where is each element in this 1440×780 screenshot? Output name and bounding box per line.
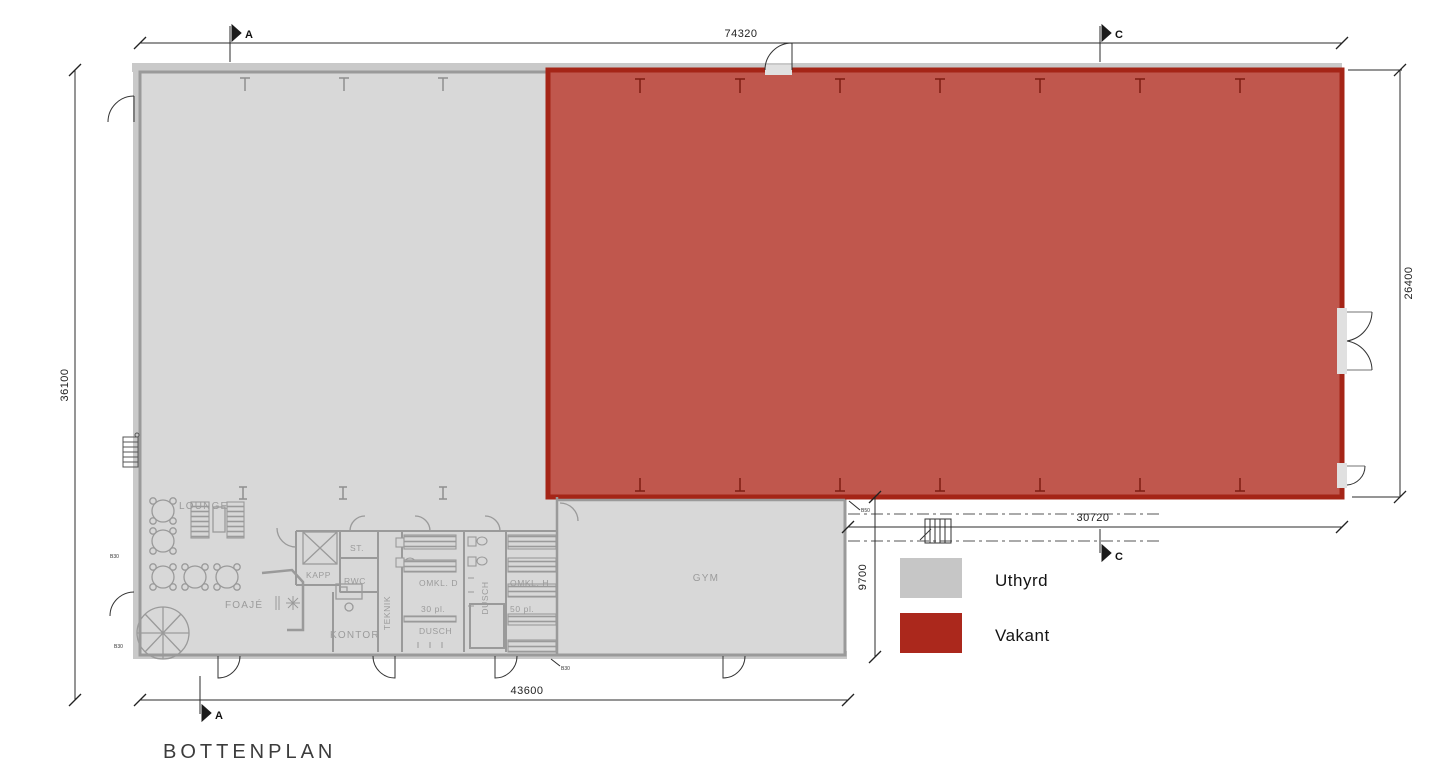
dim-vacant-width: 30720 <box>1076 512 1109 524</box>
floorplan-page: LOUNGE FOAJÉ KAPP ST. RWC KONTOR TEKNIK … <box>0 0 1440 780</box>
door-arc <box>110 592 134 616</box>
room-label-st: ST. <box>350 543 364 553</box>
section-marker-label: A <box>245 29 253 41</box>
single-door <box>1347 466 1365 485</box>
legend-swatch-uthyrd <box>900 558 962 598</box>
door-arc <box>218 656 240 678</box>
room-label-foaje: FOAJÉ <box>225 598 263 611</box>
room-label-omkl-d-capacity: 30 pl. <box>421 604 445 614</box>
floorplan-drawing: LOUNGE FOAJÉ KAPP ST. RWC KONTOR TEKNIK … <box>0 0 1440 780</box>
vakant-area <box>548 70 1342 497</box>
door-arc <box>108 96 134 122</box>
section-marker-label: C <box>1115 551 1123 563</box>
door-arc <box>723 656 745 678</box>
room-label-kapp: KAPP <box>306 570 331 580</box>
dim-bottom-width: 43600 <box>510 685 543 697</box>
dim-right-height: 26400 <box>1403 266 1415 299</box>
door-arc <box>373 656 395 678</box>
room-label-rwc: RWC <box>344 576 366 586</box>
section-marker-label: C <box>1115 29 1123 41</box>
room-label-omkl-d: OMKL. D <box>419 578 458 588</box>
room-label-lounge: LOUNGE <box>179 501 228 512</box>
section-marker-c-bottom: C <box>1100 529 1123 563</box>
legend-label-vakant: Vakant <box>995 626 1050 645</box>
tiny-marker: B30 <box>114 644 123 650</box>
legend-label-uthyrd: Uthyrd <box>995 571 1048 590</box>
room-label-dusch-corridor: DUSCH <box>480 581 490 614</box>
door-opening <box>1337 308 1347 374</box>
exterior-stair-group <box>848 501 1160 543</box>
door-arc <box>495 656 517 678</box>
room-label-omkl-h-capacity: 50 pl. <box>510 604 534 614</box>
stair-ladder-icon <box>920 519 951 543</box>
room-label-omkl-h: OMKL. H <box>510 578 549 588</box>
room-label-teknik: TEKNIK <box>382 596 392 630</box>
door-opening <box>765 65 792 75</box>
vakant-area-group <box>548 43 1372 497</box>
tiny-marker: B50 <box>861 508 870 514</box>
dim-left-height: 36100 <box>59 368 71 401</box>
room-label-kontor: KONTOR <box>330 630 380 641</box>
legend-swatch-vakant <box>900 613 962 653</box>
page-title: BOTTENPLAN <box>163 741 336 763</box>
section-marker-label: A <box>215 710 223 722</box>
spiral-stair-icon <box>137 607 189 659</box>
dim-gym-depth: 9700 <box>857 564 869 590</box>
dim-top-width: 74320 <box>724 28 757 40</box>
room-label-gym: GYM <box>693 573 719 584</box>
door-opening <box>1337 463 1347 488</box>
double-door <box>1347 312 1372 370</box>
room-label-dusch: DUSCH <box>419 626 452 636</box>
section-marker-a-bottom: A <box>200 676 223 722</box>
tiny-marker: B30 <box>561 666 570 672</box>
tiny-marker: B30 <box>110 554 119 560</box>
legend: Uthyrd Vakant <box>900 558 1050 653</box>
